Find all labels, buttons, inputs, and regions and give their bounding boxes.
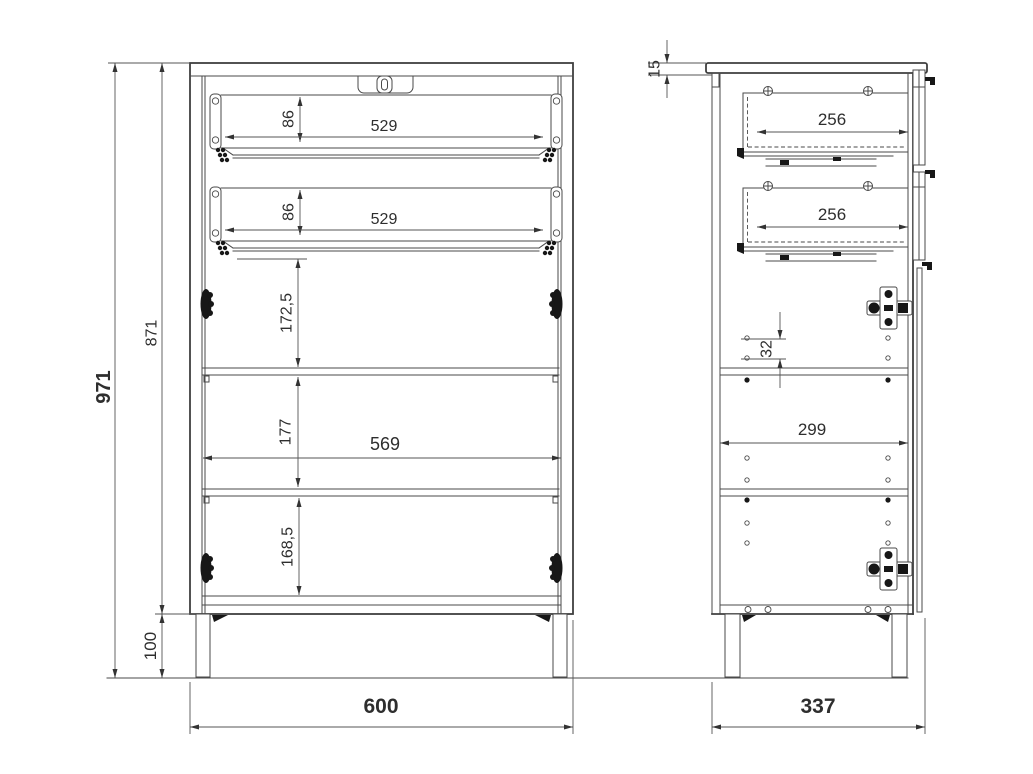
dim-lower-compartment: 168,5 <box>280 498 302 595</box>
dim-middle-compartment: 177 <box>278 377 301 487</box>
dim-drawer2-front-height-label: 86 <box>281 203 298 221</box>
front1-bracket-hook <box>925 77 935 85</box>
technical-drawing-canvas: 971 871 100 600 <box>0 0 1033 774</box>
dim-top-thickness-label: 15 <box>647 60 664 78</box>
front-carcass <box>190 63 573 614</box>
front-toplock-detail <box>358 76 413 93</box>
dim-drawer1-width-label: 529 <box>371 118 398 135</box>
dim-interior-width-label: 569 <box>370 434 400 454</box>
dim-carcass-height-label: 871 <box>144 320 161 347</box>
dim-overall-width-label: 600 <box>363 695 398 718</box>
door-bracket-hook <box>922 262 932 270</box>
dim-hole-pitch: 32 <box>741 312 786 388</box>
dim-drawer1-depth-label: 256 <box>818 110 846 129</box>
dim-drawer1-front-height: 86 <box>281 97 303 142</box>
side-view <box>706 63 935 677</box>
dim-lower-compartment-label: 168,5 <box>280 527 297 567</box>
dim-interior-depth-label: 299 <box>798 420 826 439</box>
dimensions-front: 971 871 100 600 <box>93 63 573 734</box>
side-legs <box>725 614 907 677</box>
dim-carcass-height: 871 <box>144 63 196 614</box>
side-fronts <box>913 70 935 612</box>
dim-top-thickness: 15 <box>647 40 712 98</box>
dim-overall-height-label: 971 <box>93 370 115 403</box>
front-view <box>190 63 573 677</box>
dim-upper-compartment: 172,5 <box>237 259 307 367</box>
dim-drawer2-depth-label: 256 <box>818 205 846 224</box>
dim-interior-depth: 299 <box>720 420 908 446</box>
dim-drawer1-width: 529 <box>225 118 543 140</box>
dim-upper-compartment-label: 172,5 <box>279 293 296 333</box>
dim-overall-width: 600 <box>190 620 573 734</box>
dim-leg-height: 100 <box>141 614 165 678</box>
dim-drawer2-front-height: 86 <box>281 190 303 235</box>
side-shelf-holes <box>745 336 890 545</box>
dim-overall-height: 971 <box>93 63 190 678</box>
dimensions-side: 15 256 256 32 <box>647 40 925 734</box>
cabinet-dimension-drawing: 971 871 100 600 <box>0 0 1033 774</box>
side-carcass <box>706 63 927 614</box>
dim-drawer1-front-height-label: 86 <box>281 110 298 128</box>
front-legs <box>196 614 567 677</box>
hinge-bottom <box>867 548 912 590</box>
dim-hole-pitch-label: 32 <box>759 340 776 358</box>
dim-drawer2-width: 529 <box>225 211 543 233</box>
dim-drawer2-width-label: 529 <box>371 211 398 228</box>
hinge-top <box>867 287 912 329</box>
dim-leg-height-label: 100 <box>141 632 160 660</box>
dim-overall-depth-label: 337 <box>800 695 835 718</box>
dim-drawer1-depth: 256 <box>757 110 908 135</box>
dim-drawer2-depth: 256 <box>757 205 908 230</box>
dim-interior-width: 569 <box>203 434 561 461</box>
front2-bracket-hook <box>925 170 935 178</box>
dim-middle-compartment-label: 177 <box>278 419 295 446</box>
